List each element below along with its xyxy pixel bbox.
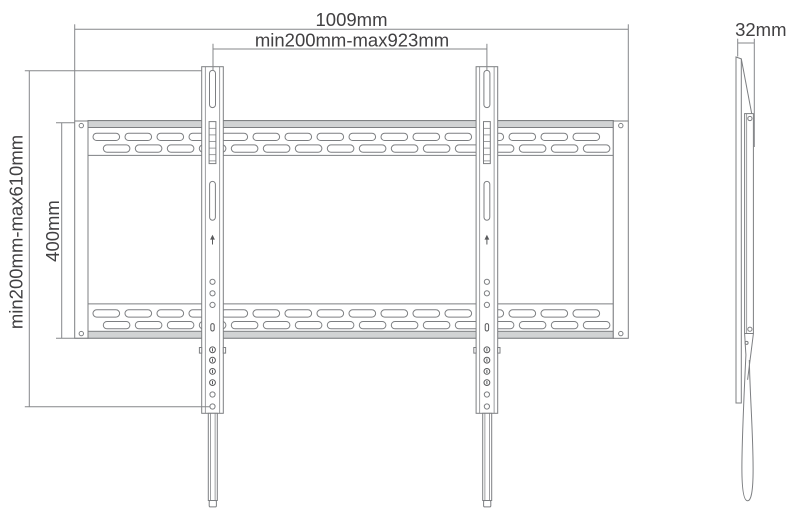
vesa-slot — [573, 310, 600, 317]
vesa-slot — [157, 133, 184, 140]
vesa-slot — [317, 310, 344, 317]
dim-depth: 32mm — [735, 19, 786, 147]
vesa-slot — [509, 310, 536, 317]
wall-plate — [75, 121, 629, 339]
vesa-slot — [157, 310, 184, 317]
vesa-slot — [413, 133, 440, 140]
cap-screw-hole — [79, 331, 83, 335]
cap-screw-hole — [619, 123, 623, 127]
vesa-slot — [221, 133, 248, 140]
safety-strap — [742, 334, 754, 501]
vesa-slot — [551, 145, 578, 152]
vesa-slot — [135, 145, 162, 152]
vesa-slot — [519, 322, 546, 329]
side-rivet — [748, 116, 752, 120]
vesa-slot — [541, 133, 568, 140]
dim-overall-width-label: 1009mm — [316, 9, 388, 30]
plate-top-strip — [88, 121, 613, 128]
vesa-slot — [327, 145, 354, 152]
vesa-slot — [285, 133, 312, 140]
vesa-slot — [93, 310, 120, 317]
vesa-slot — [541, 310, 568, 317]
dim-vertical-vesa-label: min200mm-max610mm — [6, 135, 27, 329]
vesa-slot — [445, 133, 472, 140]
right-vesa-rail — [474, 67, 500, 507]
cap-screw-hole — [79, 123, 83, 127]
vesa-slot — [349, 310, 376, 317]
plate-face — [88, 121, 613, 339]
vesa-slot — [253, 133, 280, 140]
left-vesa-rail — [199, 67, 225, 507]
vesa-slot — [413, 310, 440, 317]
side-wall-bar — [745, 114, 754, 334]
vesa-slot — [551, 322, 578, 329]
dim-depth-label: 32mm — [735, 19, 786, 40]
vesa-slot — [327, 322, 354, 329]
vesa-slot — [519, 145, 546, 152]
side-hook — [741, 59, 751, 114]
vesa-slot — [445, 310, 472, 317]
vesa-slot — [509, 133, 536, 140]
vesa-slot — [391, 322, 418, 329]
vesa-slot — [125, 310, 152, 317]
vesa-slot — [103, 145, 130, 152]
dim-plate-height-label: 400mm — [42, 200, 63, 262]
vesa-slot — [263, 322, 290, 329]
vesa-slot — [381, 310, 408, 317]
vesa-slot — [167, 145, 194, 152]
cap-screw-hole — [619, 331, 623, 335]
wall-mount-drawing: 1009mm min200mm-max923mm min200mm-max610… — [0, 0, 800, 521]
vesa-slot — [125, 133, 152, 140]
vesa-slot — [135, 322, 162, 329]
vesa-slot — [317, 133, 344, 140]
left-end-cap — [75, 121, 88, 338]
vesa-slot — [423, 145, 450, 152]
vesa-slot — [349, 133, 376, 140]
vesa-slot — [583, 145, 610, 152]
vesa-slot — [391, 145, 418, 152]
vesa-slot — [573, 133, 600, 140]
technical-drawing-page: 1009mm min200mm-max923mm min200mm-max610… — [0, 0, 800, 521]
vesa-slot — [93, 133, 120, 140]
vesa-slot — [359, 145, 386, 152]
vesa-slot — [167, 322, 194, 329]
vesa-slot — [295, 145, 322, 152]
vesa-slot — [103, 322, 130, 329]
side-rivet — [748, 327, 752, 331]
dim-horizontal-vesa: min200mm-max923mm — [213, 30, 487, 71]
vesa-slot — [263, 145, 290, 152]
dim-overall-width: 1009mm — [75, 9, 629, 121]
vesa-slot — [583, 322, 610, 329]
front-view: 1009mm min200mm-max923mm min200mm-max610… — [6, 9, 629, 507]
vesa-slot — [231, 145, 258, 152]
vesa-slot — [221, 310, 248, 317]
vesa-slot — [253, 310, 280, 317]
vesa-slot — [231, 322, 258, 329]
vesa-slot — [381, 133, 408, 140]
side-view: 32mm — [735, 19, 786, 501]
vesa-slot — [295, 322, 322, 329]
vesa-slot — [285, 310, 312, 317]
dim-horizontal-vesa-label: min200mm-max923mm — [255, 30, 449, 51]
side-rail-profile — [736, 57, 741, 403]
side-rivet — [745, 341, 748, 344]
right-end-cap — [613, 121, 628, 338]
plate-bottom-strip — [88, 331, 613, 338]
vesa-slot — [423, 322, 450, 329]
vesa-slot — [359, 322, 386, 329]
